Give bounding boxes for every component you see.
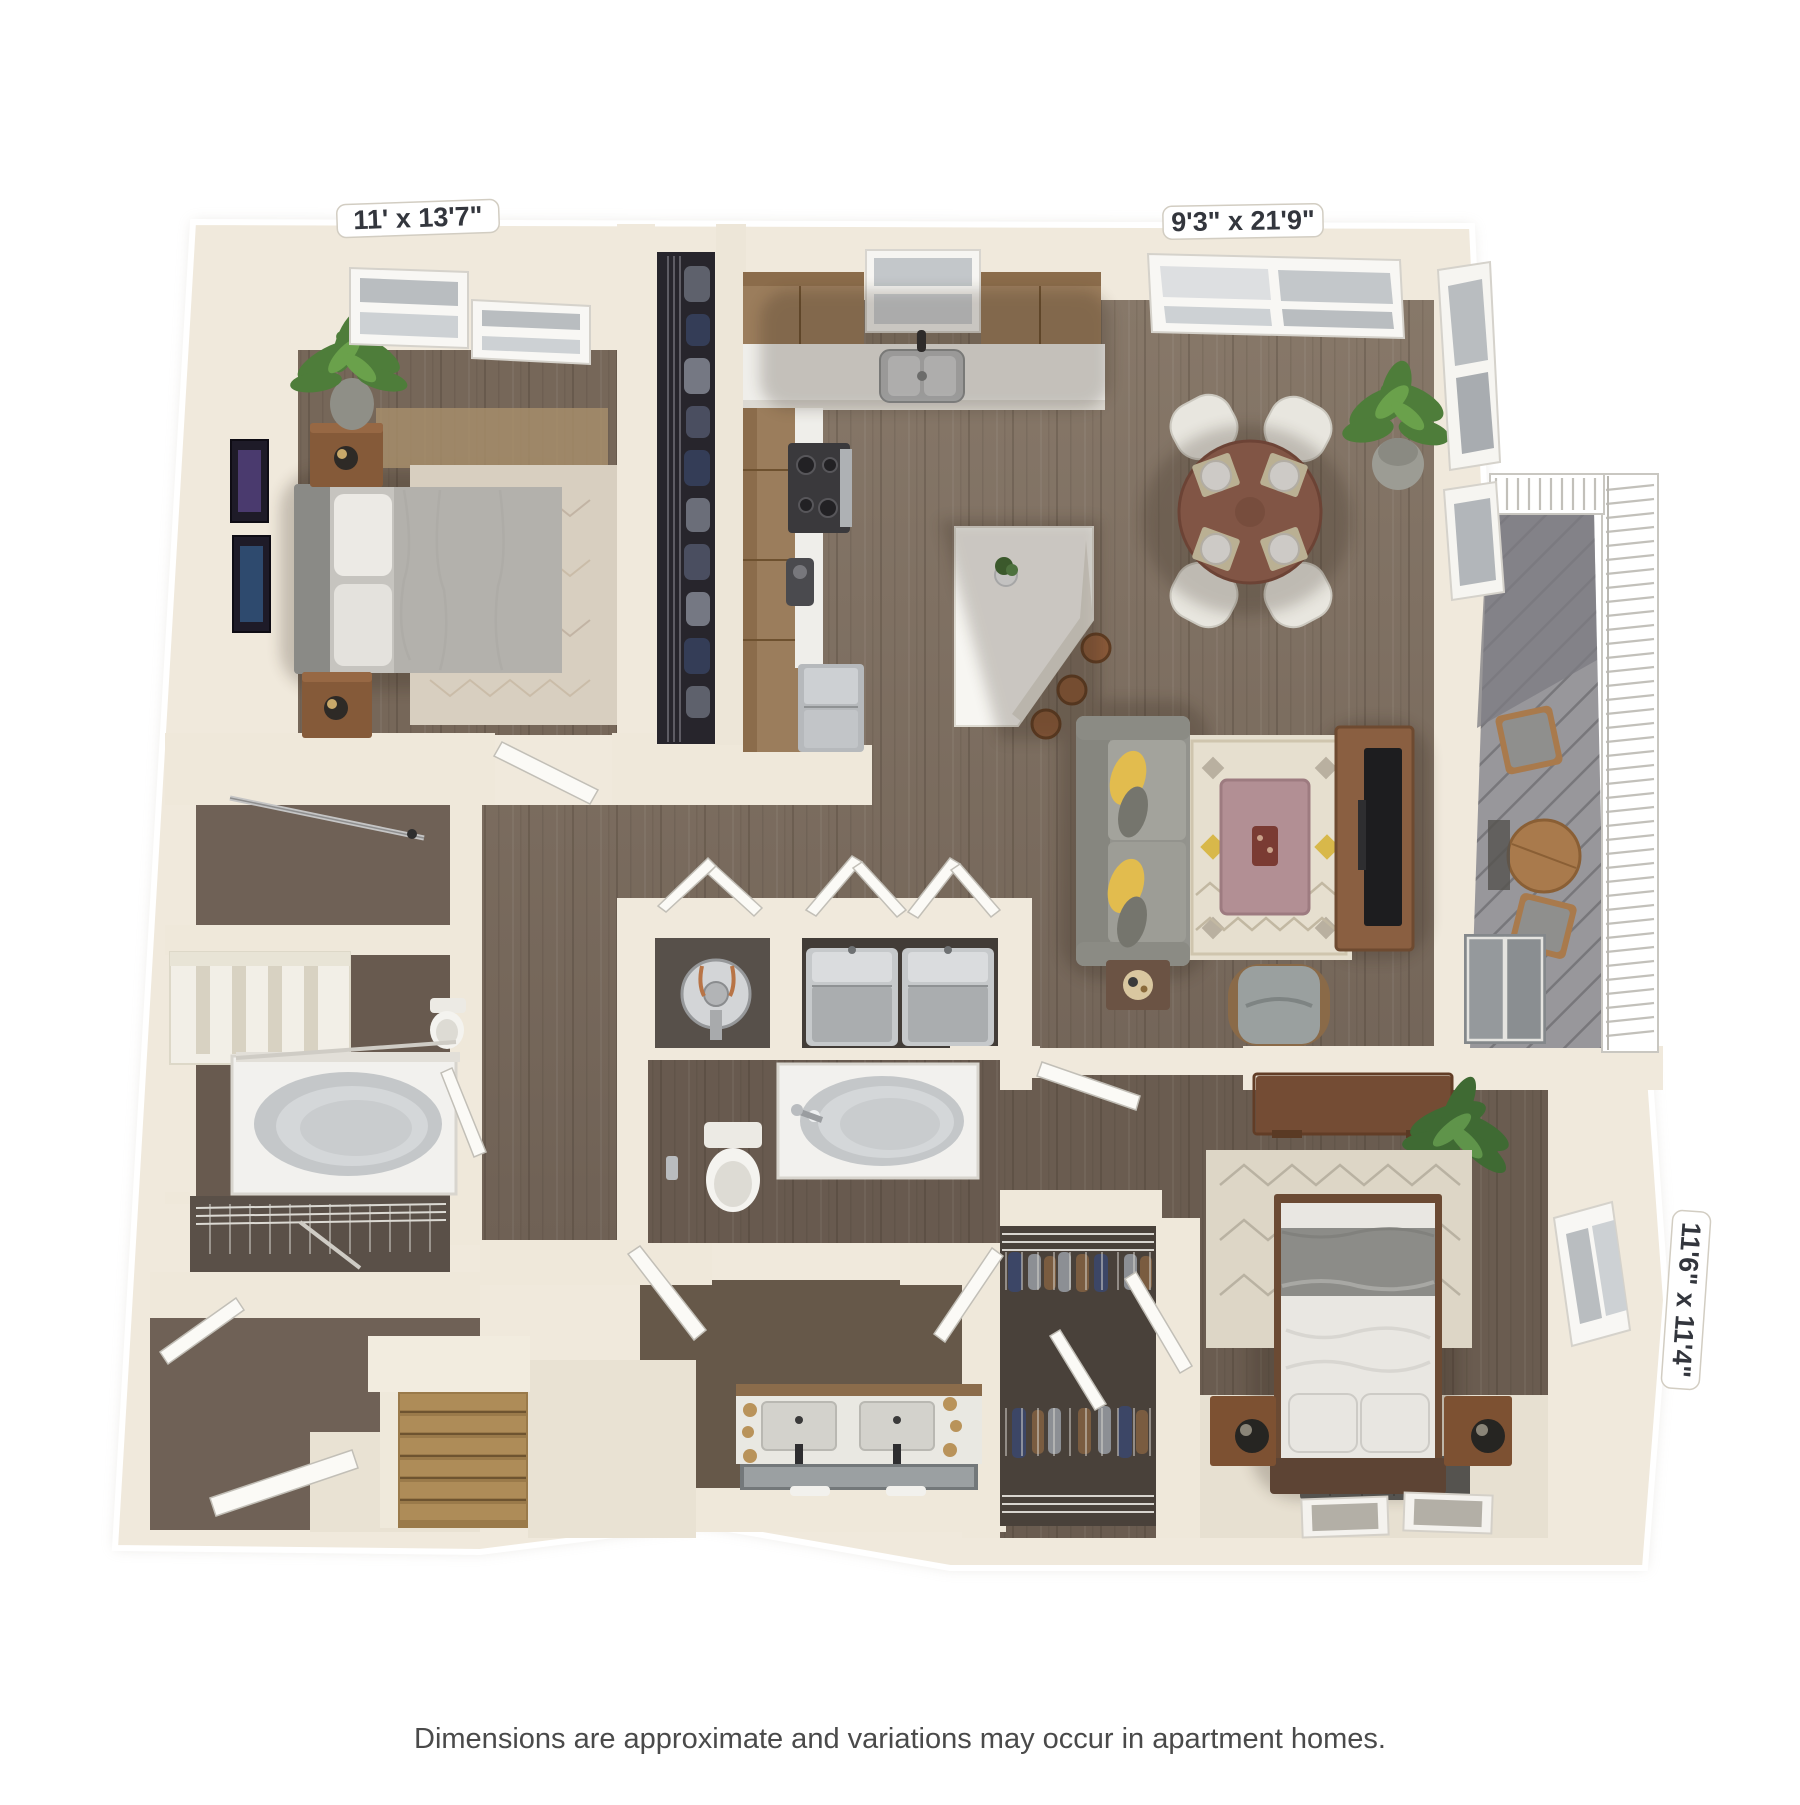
svg-text:9'3" x 21'9": 9'3" x 21'9": [1171, 205, 1315, 238]
svg-text:Dimensions are approximate and: Dimensions are approximate and variation…: [414, 1723, 1386, 1755]
svg-text:11' x 13'7": 11' x 13'7": [353, 201, 483, 235]
